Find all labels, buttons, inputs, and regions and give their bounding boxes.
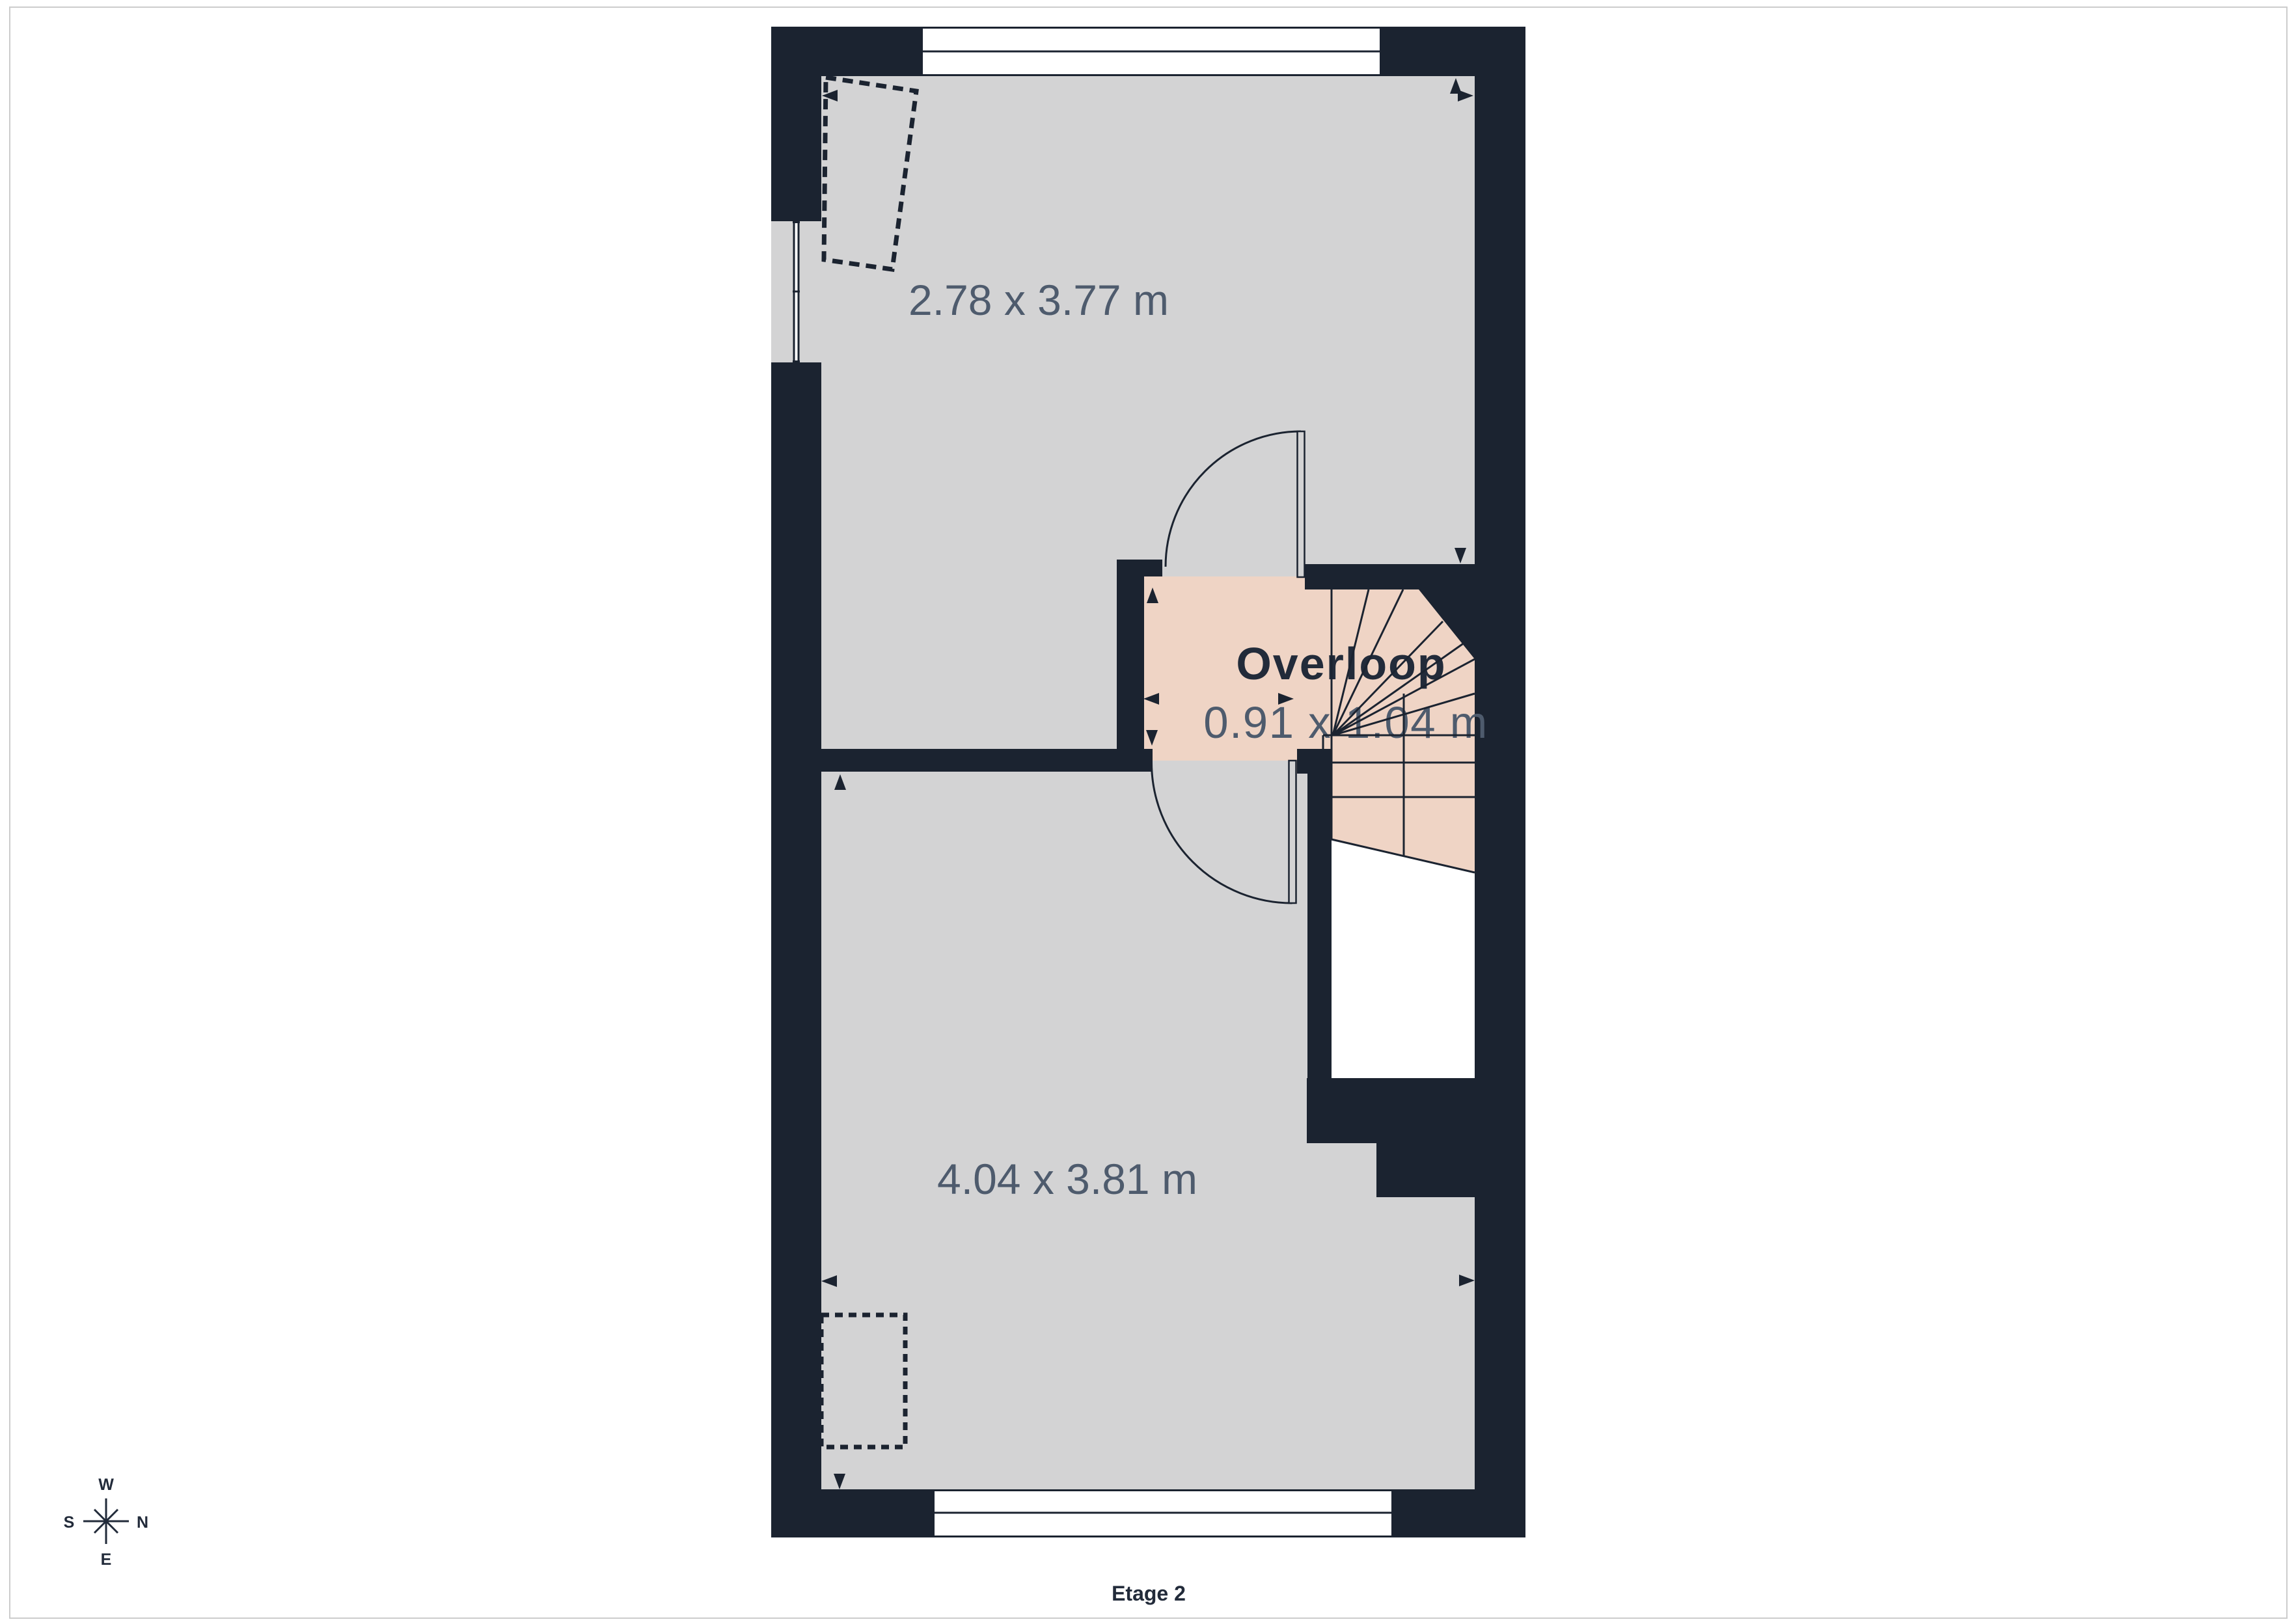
svg-text:N: N — [137, 1513, 148, 1532]
svg-text:Overloop: Overloop — [1236, 638, 1446, 689]
svg-text:4.04 x 3.81 m: 4.04 x 3.81 m — [937, 1155, 1197, 1203]
svg-text:2.78 x 3.77 m: 2.78 x 3.77 m — [909, 276, 1169, 324]
svg-text:S: S — [64, 1513, 75, 1532]
svg-text:E: E — [101, 1550, 112, 1569]
svg-text:W: W — [98, 1476, 114, 1494]
svg-text:Etage 2: Etage 2 — [1112, 1582, 1186, 1605]
